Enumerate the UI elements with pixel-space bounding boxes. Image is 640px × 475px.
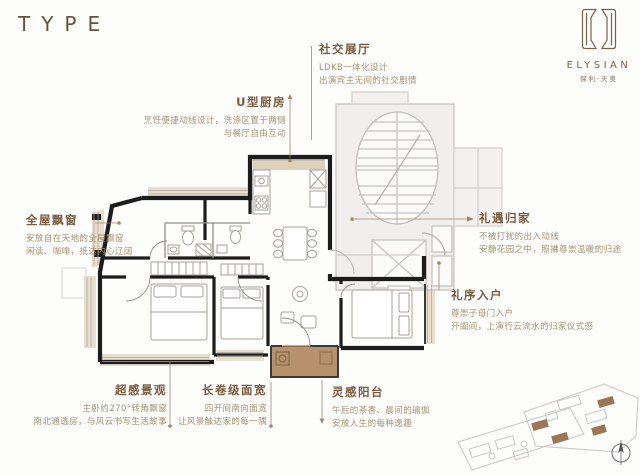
page-title: TYPE [18,12,111,36]
callout-line: 出演宾主无间的社交剧情 [319,75,417,88]
elevator [372,240,426,291]
callout-title: U型厨房 [110,94,286,110]
callout-line: 与餐厅自由互动 [110,128,286,141]
callout-title: 全屋飘窗 [26,212,133,228]
callout-entry: 礼序入户 尊崇子母门入户 开阖间，上演行云流水的归家仪式感 [451,287,593,334]
callout-social-hall: 社交展厅 LDKB一体化设计 出演宾主无间的社交剧情 [319,41,417,88]
toilet-icon [183,231,194,245]
leader-kitchen [288,94,293,162]
callout-line: 开阖间，上演行云流水的归家仪式感 [451,321,593,334]
page: TYPE ELYSIAN 保利·天奥 社交展厅 LDKB一体化设计 出演宾主无间… [0,0,640,475]
callout-line: 不被打扰的出入动线 [479,231,621,244]
callout-line: 闲读、咖啡，抵达内心辽阔 [26,246,133,259]
toilet-icon [231,231,241,244]
dining-table [274,227,317,260]
kitchen-counter [253,170,326,214]
callout-balcony: 灵感阳台 午后的茶香、晨间的瑜伽 安放人生的每种逸趣 [332,384,430,431]
leader-balcony [320,380,325,424]
callout-title: 礼遇归家 [479,210,621,226]
callout-bay-window: 全屋飘窗 安放自在天地的全屋飘窗 闲读、咖啡，抵达内心辽阔 [26,212,133,259]
callout-line: 安静花园之中，照拂尊崇温暖的归途 [479,244,621,257]
callout-title: 长卷级面宽 [102,382,267,398]
brand-logo: ELYSIAN 保利·天奥 [558,8,640,83]
leader-facade-width [269,382,273,428]
master-bed [151,284,207,340]
callout-line: 安放人生的每种逸趣 [332,418,430,431]
balcony-area [271,346,338,377]
site-plan [458,384,638,470]
site-highlighted-buildings [531,396,615,444]
brand-name-cn: 保利·天奥 [558,73,640,83]
callout-title: 礼序入户 [451,287,593,303]
living-room [281,287,316,329]
callout-line: 尊崇子母门入户 [451,308,593,321]
callout-homecoming: 礼遇归家 不被打扰的出入动线 安静花园之中，照拂尊崇温暖的归途 [479,210,621,257]
sink-icon [259,178,265,184]
callout-title: 灵感阳台 [332,384,430,400]
callout-line: 让风景触达家的每一隅 [102,416,267,429]
elysian-monogram-icon [581,8,617,54]
bathroom-2 [217,226,241,253]
callout-facade-width: 长卷级面宽 四开间南向面宽 让风景触达家的每一隅 [102,382,267,429]
staircase [356,112,438,224]
bed-2 [221,287,263,339]
callout-u-kitchen: U型厨房 烹饪便捷动线设计，洗涤区置于两侧 与餐厅自由互动 [110,94,286,141]
callout-line: 午后的茶香、晨间的瑜伽 [332,405,430,418]
bed-3 [352,290,412,338]
callout-line: LDKB一体化设计 [319,62,417,75]
callout-line: 烹饪便捷动线设计，洗涤区置于两侧 [110,115,286,128]
callout-line: 安放自在天地的全屋飘窗 [26,233,133,246]
callout-line: 四开间南向面宽 [102,403,267,416]
callout-title: 社交展厅 [319,41,417,57]
brand-name: ELYSIAN [558,60,640,71]
